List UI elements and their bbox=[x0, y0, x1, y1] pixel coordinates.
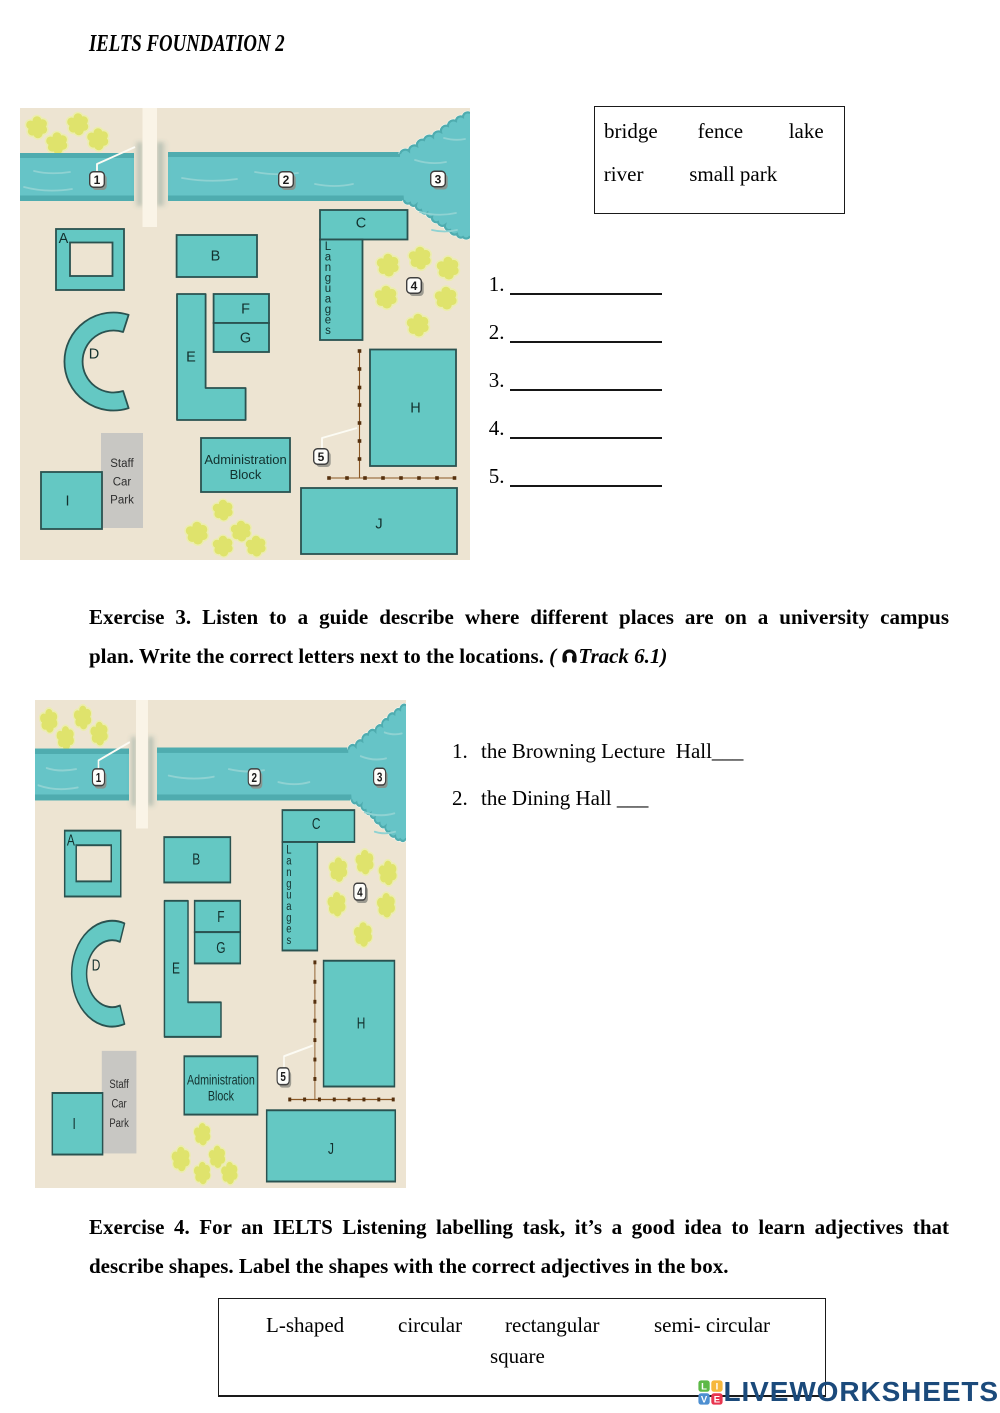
svg-text:1: 1 bbox=[94, 173, 101, 187]
svg-text:Languages: Languages bbox=[286, 843, 292, 947]
svg-text:H: H bbox=[356, 1014, 365, 1032]
svg-text:Block: Block bbox=[207, 1088, 234, 1104]
svg-text:L: L bbox=[701, 1381, 707, 1392]
svg-text:I: I bbox=[65, 494, 69, 510]
svg-text:B: B bbox=[192, 850, 200, 868]
svg-text:5: 5 bbox=[280, 1070, 286, 1083]
svg-text:H: H bbox=[410, 401, 420, 417]
svg-text:Languages: Languages bbox=[325, 241, 332, 337]
svg-text:Park: Park bbox=[109, 1116, 129, 1129]
svg-text:C: C bbox=[356, 216, 366, 232]
svg-text:3: 3 bbox=[376, 771, 381, 784]
svg-text:I: I bbox=[72, 1114, 75, 1132]
svg-text:J: J bbox=[375, 517, 382, 533]
svg-text:4: 4 bbox=[357, 886, 363, 899]
svg-text:G: G bbox=[216, 938, 225, 956]
svg-text:E: E bbox=[186, 350, 196, 366]
svg-text:Block: Block bbox=[230, 467, 262, 482]
svg-text:Staff: Staff bbox=[110, 458, 134, 470]
svg-text:D: D bbox=[91, 955, 100, 973]
svg-text:4: 4 bbox=[411, 279, 418, 293]
svg-text:E: E bbox=[714, 1394, 720, 1405]
svg-text:C: C bbox=[311, 814, 320, 832]
svg-text:I: I bbox=[715, 1381, 718, 1392]
svg-text:A: A bbox=[59, 231, 69, 247]
svg-text:E: E bbox=[171, 959, 179, 977]
svg-text:J: J bbox=[327, 1139, 333, 1157]
svg-text:Administration: Administration bbox=[187, 1071, 255, 1087]
svg-text:3: 3 bbox=[435, 172, 442, 186]
svg-text:Staff: Staff bbox=[109, 1077, 129, 1090]
svg-text:Park: Park bbox=[110, 495, 134, 507]
svg-text:G: G bbox=[240, 331, 251, 347]
svg-text:Car: Car bbox=[113, 476, 132, 488]
svg-text:F: F bbox=[217, 907, 224, 925]
svg-text:A: A bbox=[66, 831, 75, 849]
svg-text:B: B bbox=[211, 249, 221, 265]
svg-text:D: D bbox=[89, 347, 99, 363]
svg-text:1: 1 bbox=[95, 771, 101, 784]
svg-text:5: 5 bbox=[318, 450, 325, 464]
svg-text:Car: Car bbox=[111, 1097, 127, 1110]
svg-text:2: 2 bbox=[283, 173, 290, 187]
svg-text:2: 2 bbox=[251, 771, 256, 784]
svg-text:F: F bbox=[241, 302, 250, 318]
svg-text:V: V bbox=[701, 1394, 708, 1405]
svg-text:Administration: Administration bbox=[204, 452, 286, 467]
